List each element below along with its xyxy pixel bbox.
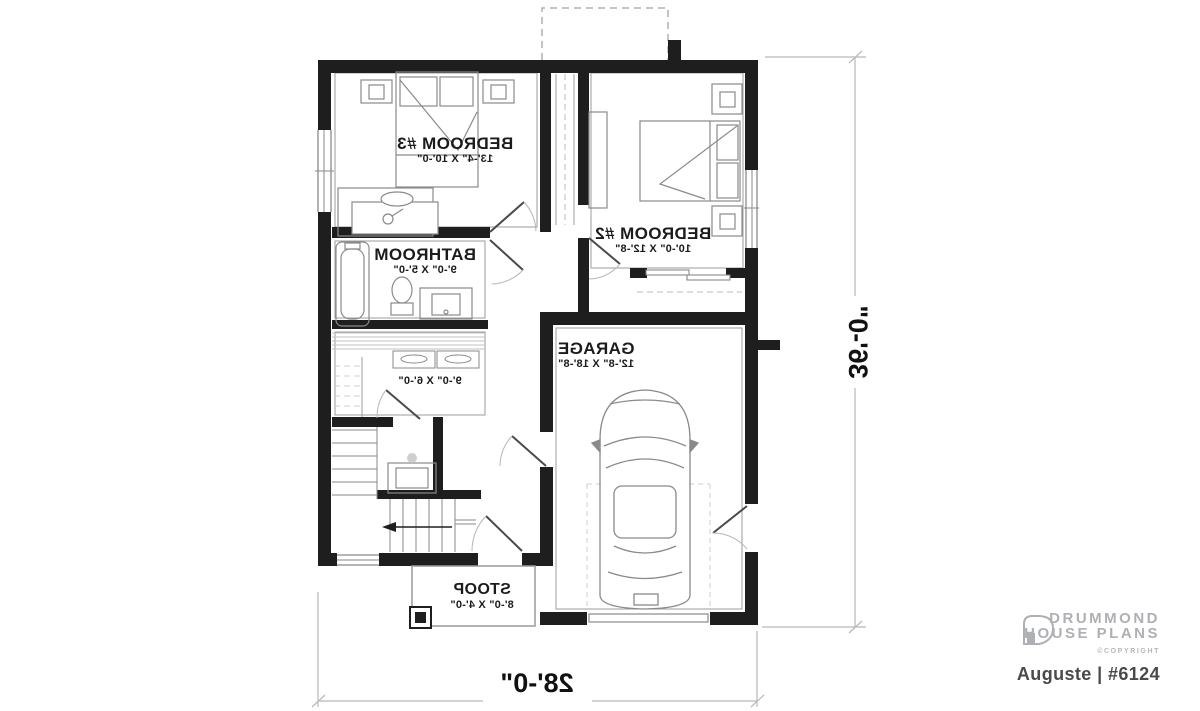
room-label-stoop: STOOP 8'-0" X 4'-0": [402, 581, 562, 612]
room-label-bedroom3: BEDROOM #3 13'-4" X 10'-0": [355, 135, 555, 166]
bedroom3-closet: [556, 74, 574, 225]
bedroom3-dims: 13'-4" X 10'-0": [355, 152, 555, 166]
deck-dashed-outline: [542, 8, 668, 60]
room-label-utility: 9'-0" X 6'-0": [350, 374, 510, 388]
garage-dims: 12'-8" X 18'-8": [506, 357, 686, 371]
room-label-bathroom: BATHROOM 9'-0" X 5'-0": [335, 246, 515, 277]
bedroom2-dims: 10'-0" X 12'-8": [553, 242, 753, 256]
bathroom-name: BATHROOM: [335, 246, 515, 263]
room-label-bedroom2: BEDROOM #2 10'-0" X 12'-8": [553, 225, 753, 256]
bedroom3-name: BEDROOM #3: [355, 135, 555, 152]
room-label-garage: GARAGE 12'-8" X 18'-8": [506, 340, 686, 371]
drummond-logo-icon: [1017, 611, 1057, 649]
garage-elements: [587, 390, 759, 626]
stoop-dims: 8'-0" X 4'-0": [402, 598, 562, 612]
garage-name: GARAGE: [506, 340, 686, 357]
bedroom2-furniture: [589, 84, 742, 236]
bedroom2-name: BEDROOM #2: [553, 225, 753, 242]
dimension-width: 28'-0": [437, 668, 637, 699]
bathroom-dims: 9'-0" X 5'-0": [335, 263, 515, 277]
utility-dims: 9'-0" X 6'-0": [350, 374, 510, 388]
wc-fixtures: [388, 453, 436, 493]
branding: DRUMMOND HOUSE PLANS ©COPYRIGHT Auguste …: [1017, 611, 1160, 685]
stairs: [332, 427, 476, 552]
plan-title: Auguste | #6124: [1017, 664, 1160, 685]
floor-plan-canvas: BEDROOM #3 13'-4" X 10'-0" BEDROOM #2 10…: [0, 0, 1200, 711]
stoop-name: STOOP: [402, 581, 562, 598]
car-top-view: [592, 390, 698, 609]
dimension-depth: 36'-0": [843, 282, 873, 402]
